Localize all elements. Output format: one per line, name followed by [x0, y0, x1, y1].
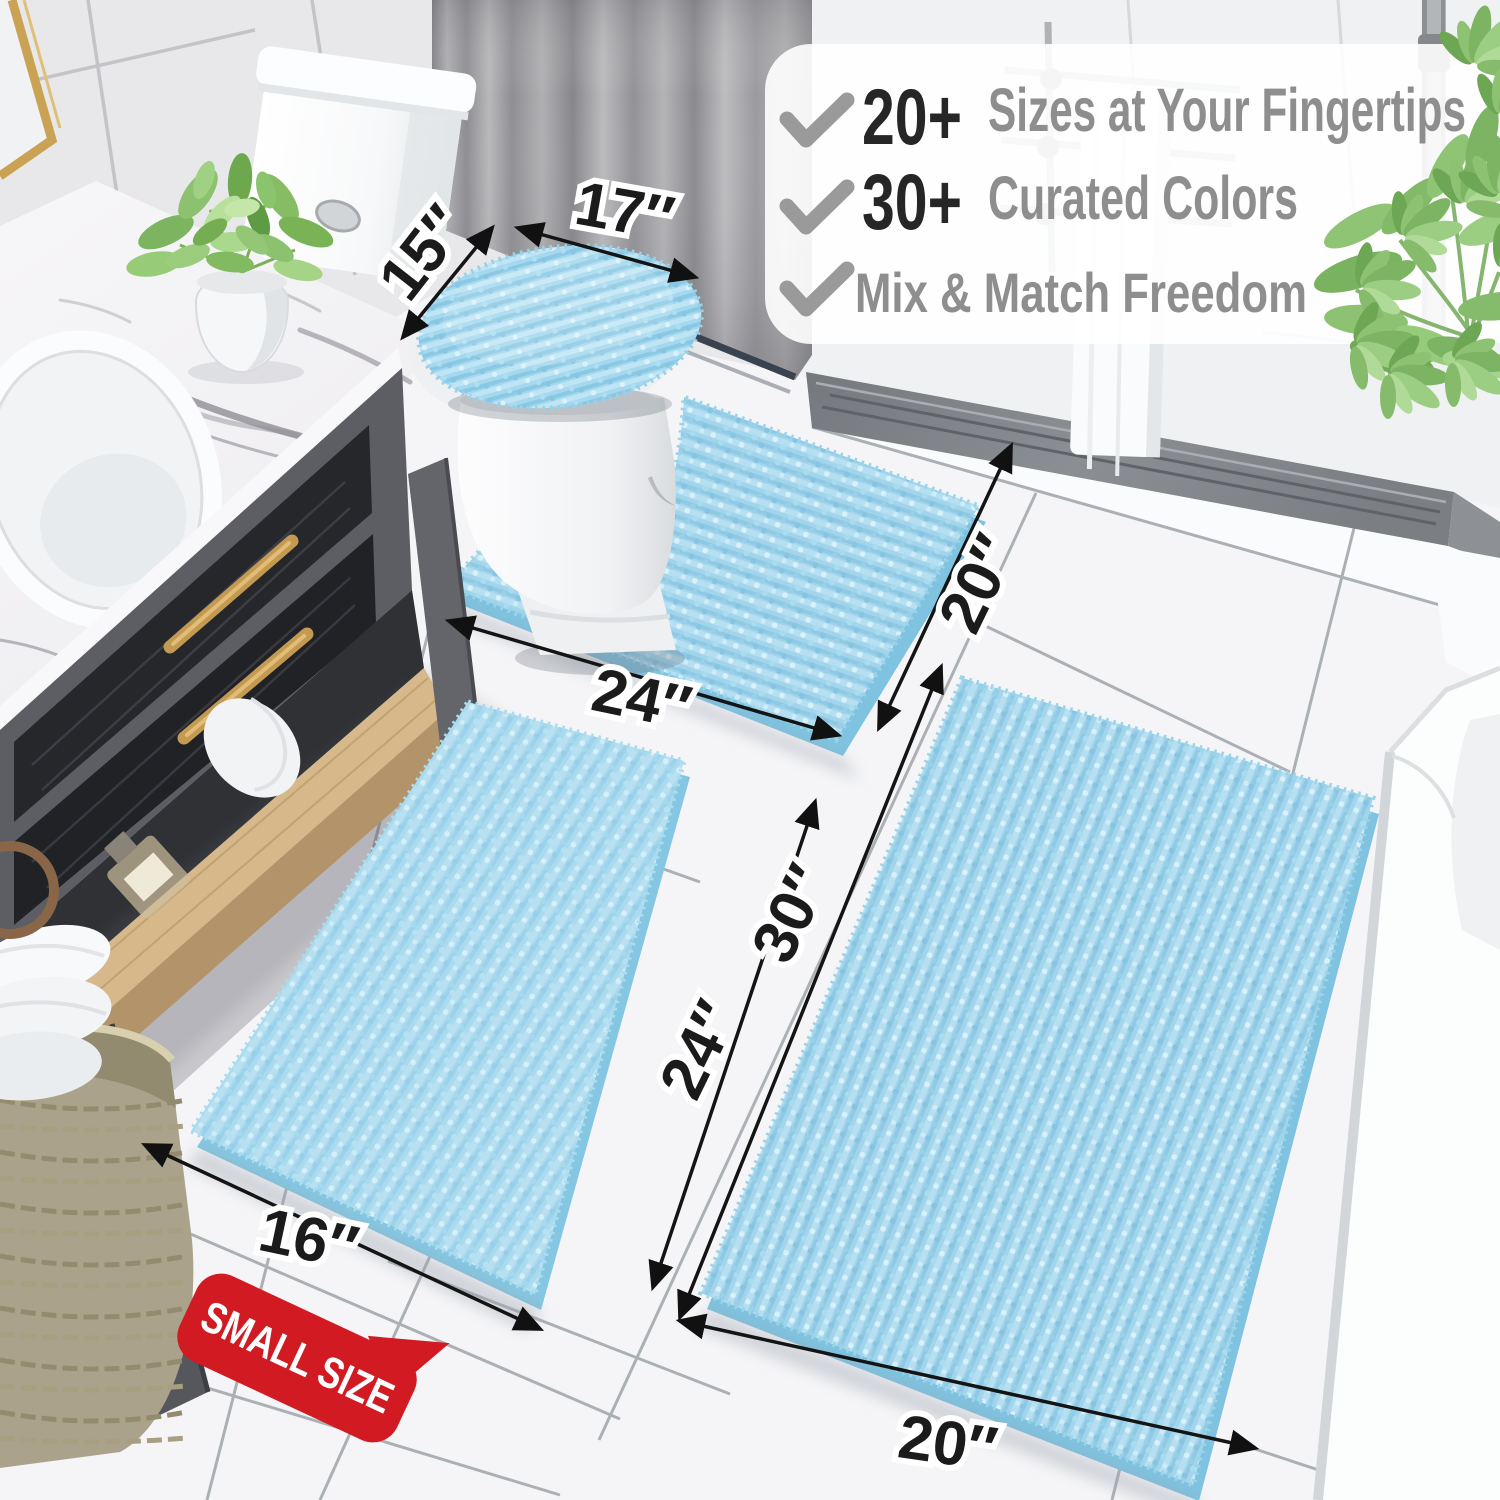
svg-text:20+: 20+ [862, 72, 962, 161]
svg-text:Sizes at Your Fingertips: Sizes at Your Fingertips [988, 76, 1466, 144]
svg-text:Curated Colors: Curated Colors [988, 164, 1298, 232]
svg-text:30+: 30+ [862, 157, 962, 246]
svg-text:Mix & Match Freedom: Mix & Match Freedom [855, 261, 1307, 324]
svg-text:20″: 20″ [894, 1402, 1001, 1484]
